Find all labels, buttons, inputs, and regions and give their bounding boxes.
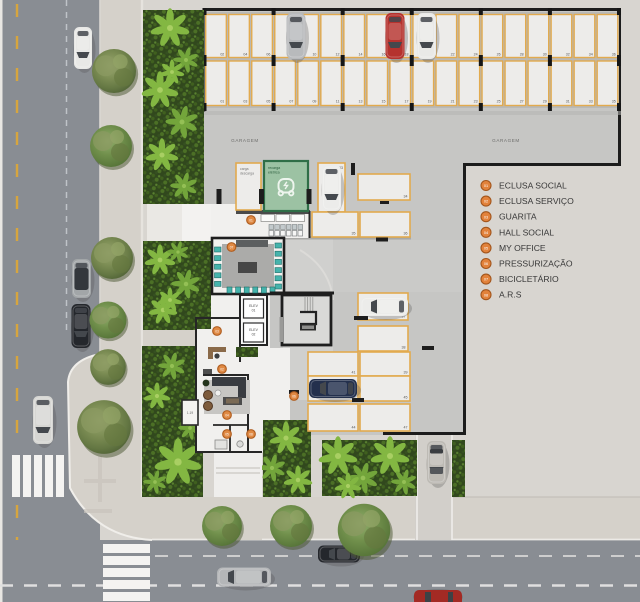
svg-text:07: 07 — [230, 245, 234, 249]
svg-text:32: 32 — [566, 53, 570, 57]
svg-text:ECLUSA SOCIAL: ECLUSA SOCIAL — [499, 181, 567, 191]
svg-text:01: 01 — [249, 218, 253, 222]
svg-text:04: 04 — [484, 231, 488, 235]
svg-text:recarga: recarga — [268, 166, 280, 170]
svg-text:GARAGEM: GARAGEM — [492, 138, 520, 143]
svg-text:PRESSURIZAÇÃO: PRESSURIZAÇÃO — [499, 259, 573, 269]
svg-text:34: 34 — [589, 53, 593, 57]
svg-text:34: 34 — [404, 195, 408, 199]
svg-text:15: 15 — [382, 100, 386, 104]
svg-text:06: 06 — [266, 53, 270, 57]
svg-text:GARAGEM: GARAGEM — [231, 138, 259, 143]
svg-text:07: 07 — [484, 278, 488, 282]
svg-text:05: 05 — [266, 100, 270, 104]
svg-text:23: 23 — [474, 100, 478, 104]
svg-text:03: 03 — [215, 329, 219, 333]
svg-text:MY OFFICE: MY OFFICE — [499, 243, 546, 253]
svg-text:09: 09 — [312, 100, 316, 104]
svg-text:05: 05 — [484, 247, 488, 251]
svg-text:44: 44 — [352, 426, 356, 430]
svg-text:05: 05 — [225, 432, 229, 436]
svg-text:39: 39 — [404, 371, 408, 375]
svg-text:04: 04 — [243, 53, 247, 57]
svg-text:35: 35 — [612, 100, 616, 104]
svg-text:02: 02 — [220, 367, 224, 371]
svg-text:13: 13 — [358, 100, 362, 104]
svg-text:12: 12 — [335, 53, 339, 57]
svg-text:45: 45 — [404, 396, 408, 400]
svg-text:31: 31 — [566, 100, 570, 104]
svg-text:17: 17 — [405, 100, 409, 104]
svg-text:35: 35 — [352, 232, 356, 236]
svg-text:08: 08 — [484, 293, 488, 297]
svg-text:carga: carga — [240, 167, 249, 171]
svg-text:06: 06 — [292, 394, 296, 398]
svg-text:1.19: 1.19 — [187, 411, 193, 415]
svg-text:27: 27 — [520, 100, 524, 104]
svg-text:03: 03 — [484, 215, 488, 219]
svg-text:22: 22 — [451, 53, 455, 57]
svg-text:02: 02 — [484, 200, 488, 204]
svg-text:01: 01 — [252, 309, 256, 313]
svg-text:26: 26 — [497, 53, 501, 57]
svg-text:HALL SOCIAL: HALL SOCIAL — [499, 227, 554, 237]
svg-text:ECLUSA SERVIÇO: ECLUSA SERVIÇO — [499, 196, 574, 206]
svg-text:03: 03 — [243, 100, 247, 104]
svg-text:10: 10 — [312, 53, 316, 57]
svg-text:30: 30 — [543, 53, 547, 57]
svg-text:36: 36 — [612, 53, 616, 57]
svg-text:06: 06 — [484, 262, 488, 266]
svg-text:ELEV: ELEV — [249, 304, 258, 308]
svg-text:A.R.S: A.R.S — [499, 290, 522, 300]
svg-text:16: 16 — [382, 53, 386, 57]
svg-text:29: 29 — [543, 100, 547, 104]
svg-text:28: 28 — [520, 53, 524, 57]
svg-text:BICICLETÁRIO: BICICLETÁRIO — [499, 274, 559, 284]
svg-text:02: 02 — [220, 53, 224, 57]
svg-text:47: 47 — [404, 426, 408, 430]
svg-text:08: 08 — [249, 432, 253, 436]
svg-text:25: 25 — [497, 100, 501, 104]
svg-text:01: 01 — [484, 184, 488, 188]
svg-text:01: 01 — [220, 100, 224, 104]
svg-text:38: 38 — [402, 346, 406, 350]
svg-text:GUARITA: GUARITA — [499, 212, 537, 222]
svg-text:04: 04 — [225, 413, 229, 417]
svg-text:11: 11 — [336, 100, 340, 104]
svg-text:descarga: descarga — [240, 172, 254, 176]
svg-text:33: 33 — [589, 100, 593, 104]
svg-text:14: 14 — [358, 53, 362, 57]
svg-text:07: 07 — [289, 100, 293, 104]
svg-text:elétrica: elétrica — [268, 171, 280, 175]
svg-text:ELEV: ELEV — [249, 328, 258, 332]
svg-text:21: 21 — [451, 100, 455, 104]
svg-text:02: 02 — [252, 333, 256, 337]
svg-text:24: 24 — [474, 53, 478, 57]
svg-text:41: 41 — [352, 371, 356, 375]
svg-text:36: 36 — [404, 232, 408, 236]
svg-text:19: 19 — [428, 100, 432, 104]
